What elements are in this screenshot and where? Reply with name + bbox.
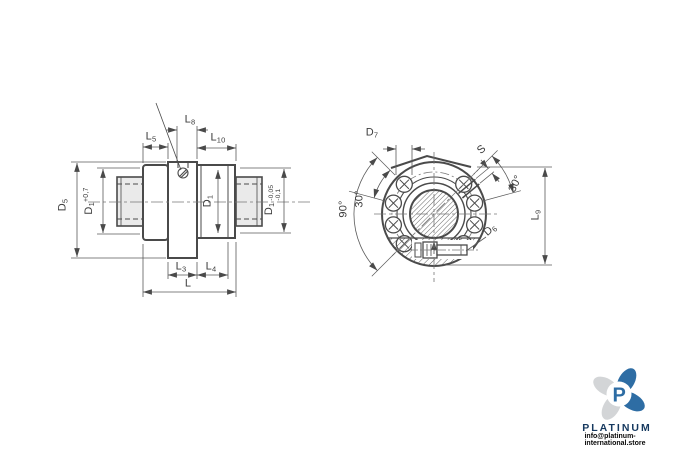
dim-label-d1-minus: D1-0,05-0,1 — [264, 185, 282, 215]
angle-label-90: 90° — [339, 200, 350, 217]
angle-label-left-30: 30° — [355, 190, 366, 207]
dim-label-d7: D7 — [366, 128, 379, 141]
dim-label-l4: L4 — [206, 262, 217, 275]
dim-label-d5: D5 — [58, 199, 71, 212]
dim-label-l9: L9 — [531, 210, 544, 221]
dim-label-l5: L5 — [146, 132, 157, 145]
svg-text:P: P — [613, 385, 626, 407]
coupling-drawing-canvas: P — [0, 0, 675, 450]
dim-label-l8: L8 — [185, 115, 196, 128]
dim-label-l: L — [185, 279, 191, 290]
dim-label-l10: L10 — [210, 133, 225, 146]
dim-label-d1: D1 — [203, 195, 216, 208]
platinum-logo-icon: P — [590, 365, 648, 423]
coupling-front-view — [374, 152, 500, 282]
brand-email: info@platinum-international.store — [584, 433, 645, 447]
dim-label-l3: L3 — [176, 262, 187, 275]
dim-label-d1-plus: D1+0,7 — [81, 187, 97, 214]
coupling-side-view — [88, 103, 310, 258]
technical-drawing-page: P D5 D1+0,7 L5 L8 L10 D1 D1-0,05-0,1 L3 … — [0, 0, 675, 450]
